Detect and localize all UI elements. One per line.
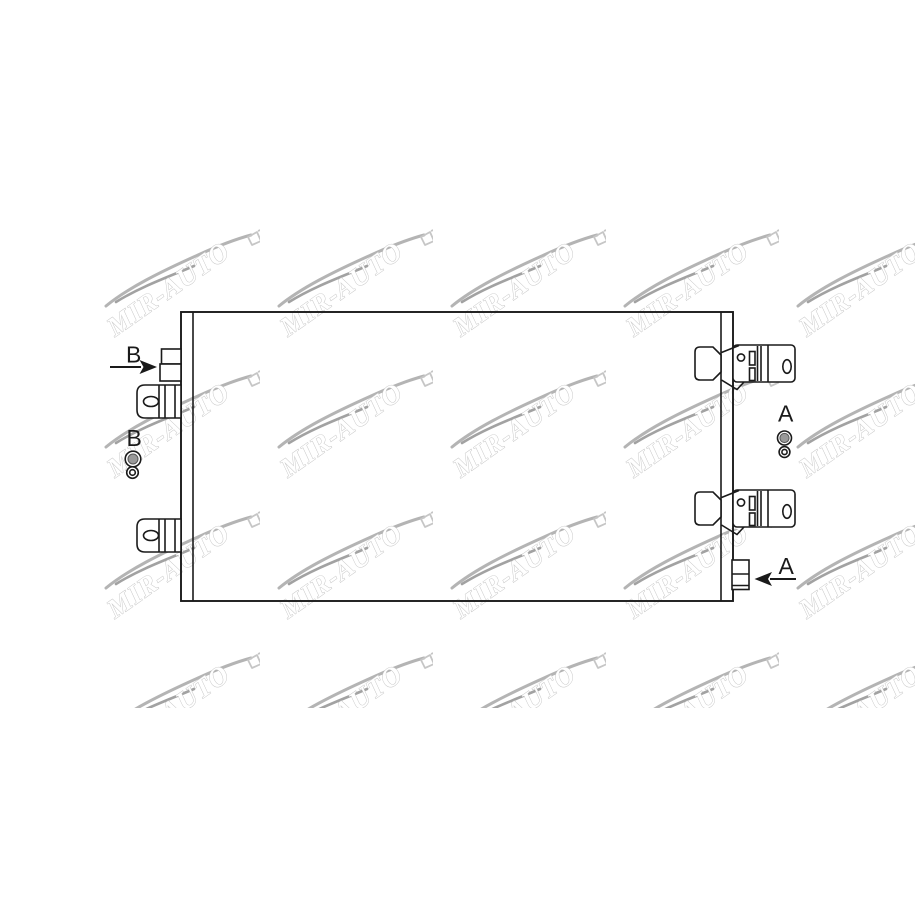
tank-cap-mid-right [695, 492, 721, 525]
label-port-b-top: B [126, 342, 141, 368]
label-port-b-valve: B [127, 425, 142, 451]
label-port-a-bottom: A [779, 553, 795, 579]
condenser-diagram: B B [0, 0, 915, 915]
tank-cap-top-right [695, 347, 721, 380]
inlet-fitting-b [160, 349, 181, 381]
mounting-bracket-bottom-left [137, 519, 181, 552]
label-port-a-valve: A [778, 401, 794, 427]
service-valve-a [778, 431, 792, 457]
service-valve-b [125, 451, 141, 478]
condenser-core-outline [181, 312, 733, 601]
outlet-fitting-a [732, 560, 749, 590]
technical-diagram: MIR-AUTO MIR-AUTO MIR-AUTO MIR-AUTO [0, 0, 915, 915]
mounting-bracket-top-left [137, 385, 181, 418]
